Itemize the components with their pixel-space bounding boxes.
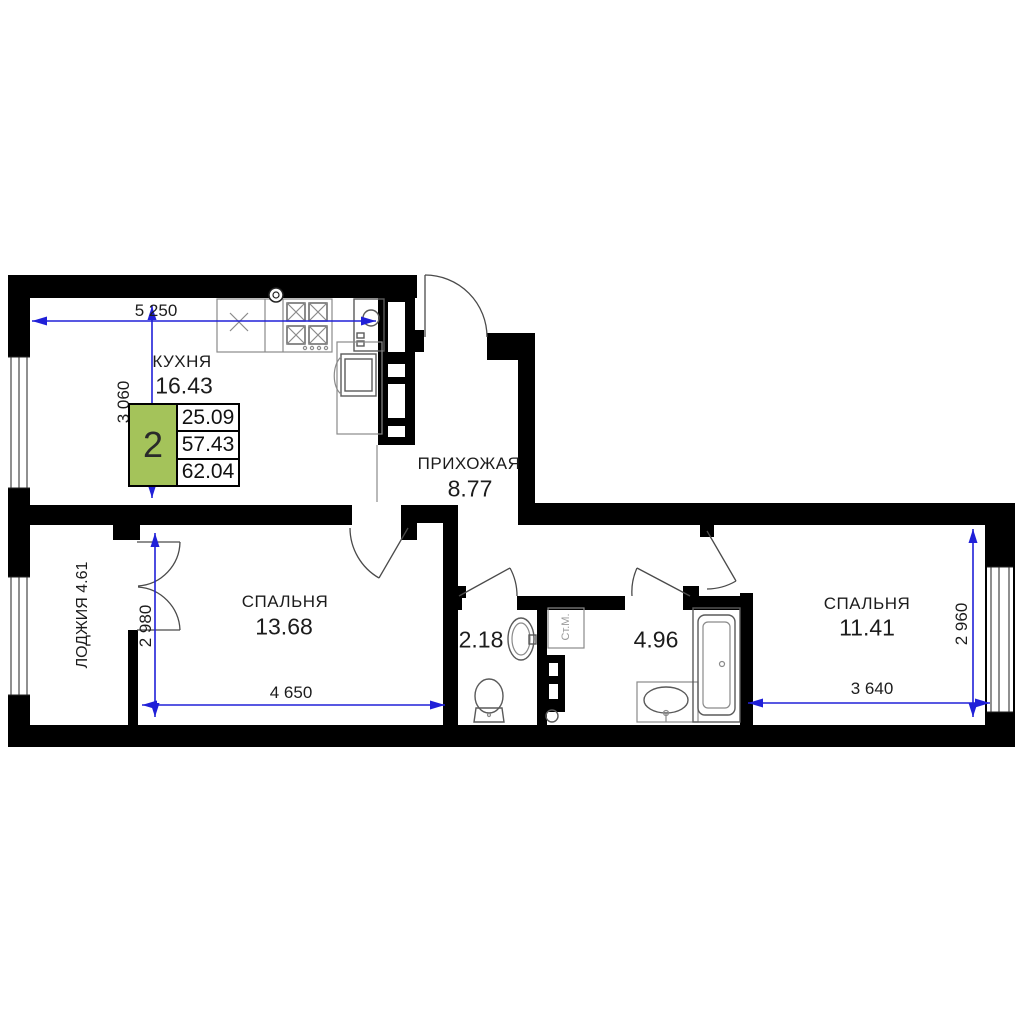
dim-kitchen-width-text: 5 250: [135, 301, 178, 321]
bath-sink-icon: [637, 682, 698, 722]
legend-area-value: 57.43: [178, 432, 238, 459]
bedroom2-label: СПАЛЬНЯ: [824, 594, 911, 614]
stove-icon: [287, 303, 328, 350]
kitchen-sink-icon: [230, 313, 248, 331]
wall: [113, 515, 140, 540]
bedroom2-window: [987, 567, 1013, 712]
vent-icon: [269, 288, 283, 302]
wc-area: 2.18: [459, 627, 504, 654]
bedroom2-area: 11.41: [839, 615, 895, 642]
washing-machine-label: Ст.М.: [560, 613, 572, 640]
wc-door: [459, 568, 517, 596]
door-swing-icon: [632, 568, 637, 596]
wc-sink-icon: [508, 618, 536, 660]
kitchen-area: 16.43: [155, 373, 213, 400]
loggia-label: ЛОДЖИЯ 4.61: [74, 562, 92, 669]
door-swing-icon: [707, 581, 736, 589]
legend-living-area: 25.09: [178, 405, 238, 432]
door-swing-icon: [425, 275, 487, 337]
door-hinge-pier: [683, 586, 699, 598]
wall: [443, 596, 462, 610]
dimension-bedroom2-width: [748, 699, 990, 708]
door-hinge-pier: [452, 586, 466, 598]
kitchen-cabinet-icon: [334, 342, 382, 434]
bathroom-door: [632, 568, 690, 596]
dim-bedroom1-depth-text: 2 980: [136, 605, 156, 648]
entrance-door: [425, 275, 487, 337]
bedroom2-door: [707, 531, 736, 589]
door-swing-icon: [510, 568, 517, 596]
toilet-icon: [474, 679, 504, 722]
apartment-legend: 2 25.09 57.43 62.04: [128, 403, 240, 487]
kitchen-label: КУХНЯ: [152, 352, 211, 372]
hallway-label: ПРИХОЖАЯ: [418, 454, 521, 474]
dim-bedroom2-width-text: 3 640: [851, 679, 894, 699]
floor-plan: КУХНЯ 16.43 ПРИХОЖАЯ 8.77 СПАЛЬНЯ 13.68 …: [0, 0, 1024, 1024]
legend-areas: 25.09 57.43 62.04: [176, 405, 238, 485]
dim-bedroom2-depth-text: 2 960: [952, 603, 972, 646]
walls: [8, 275, 1015, 747]
floor-plan-drawing: [0, 0, 1024, 1024]
bathtub-icon: [693, 608, 740, 722]
wall: [518, 358, 535, 505]
wall: [8, 275, 417, 298]
wall: [415, 330, 424, 352]
door-swing-icon: [138, 542, 180, 586]
wall: [401, 505, 458, 523]
wall: [30, 505, 352, 525]
legend-total-area: 62.04: [178, 460, 238, 485]
hallway-area: 8.77: [448, 476, 493, 503]
loggia-window: [8, 577, 30, 695]
bathroom-area: 4.96: [634, 627, 679, 654]
rooms-count-badge: 2: [130, 405, 176, 485]
wall: [740, 593, 753, 725]
bedroom1-label: СПАЛЬНЯ: [242, 592, 329, 612]
wall: [8, 725, 1015, 747]
wall: [443, 523, 458, 725]
bedroom1-door: [350, 528, 408, 578]
bedroom1-area: 13.68: [255, 614, 313, 641]
kitchen-window: [8, 357, 30, 488]
door-swing-icon: [350, 528, 379, 578]
door-hinge-pier: [401, 523, 417, 540]
dim-bedroom1-width-text: 4 650: [270, 683, 313, 703]
wall: [487, 333, 535, 360]
wall: [518, 503, 1015, 525]
